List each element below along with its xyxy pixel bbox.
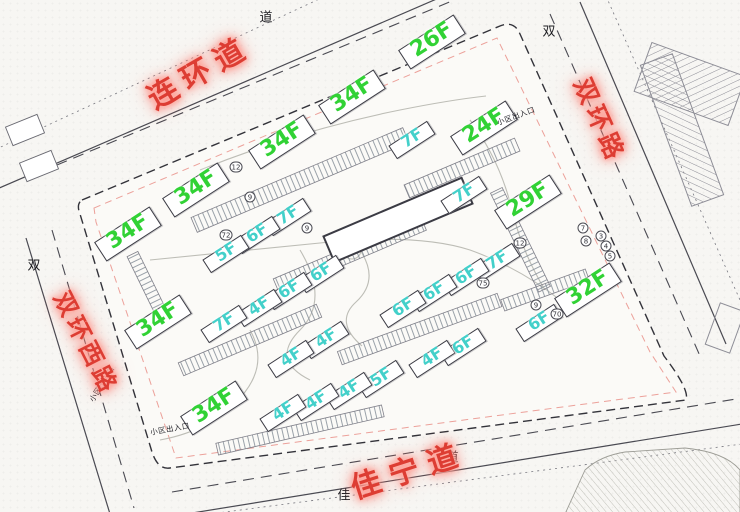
building-number-bubble: 75 <box>477 278 490 289</box>
building-number-bubble: 8 <box>581 236 592 247</box>
building-number-bubble: 7 <box>578 223 589 234</box>
road-name-char: 双 <box>542 21 555 40</box>
building-number-bubble: 12 <box>230 162 243 173</box>
building-number-bubble: 9 <box>245 192 256 203</box>
road-name-char: 双 <box>27 255 40 274</box>
building-number-bubble: 9 <box>531 300 542 311</box>
existing-buildings <box>634 42 740 353</box>
road-name-char: 佳 <box>337 485 350 504</box>
building-number-bubble: 70 <box>551 309 564 320</box>
building-number-bubble: 72 <box>220 230 233 241</box>
building-number-bubble: 5 <box>605 251 616 262</box>
landscape-hatch <box>565 448 740 512</box>
building-number-bubble: 12 <box>514 238 527 249</box>
small-plots <box>5 114 58 181</box>
site-plan: 26F34F34F24F34F34F34F34F29F32F7F7F7F6F5F… <box>0 0 740 512</box>
road-name-char: 道 <box>259 7 272 26</box>
building-number-bubble: 9 <box>302 223 313 234</box>
